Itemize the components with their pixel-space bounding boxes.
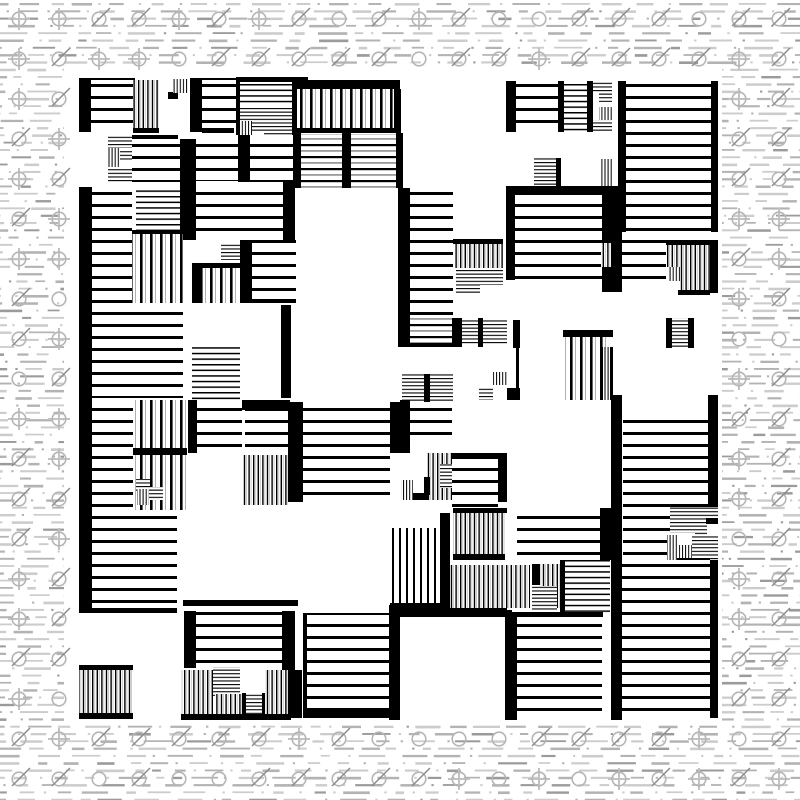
art-block-solid-bar: [478, 318, 483, 347]
art-block-hatched-h-xs: [430, 374, 453, 402]
art-block-hatched-h-lg: [517, 508, 600, 558]
art-block-solid-bar: [132, 135, 178, 139]
art-block-solid-bar: [133, 128, 159, 133]
art-block-solid-bar: [288, 670, 302, 718]
art-block-hatched-h-lg: [516, 81, 558, 132]
art-block-solid-bar: [711, 81, 718, 232]
art-block-solid-bar: [587, 81, 593, 132]
art-block-hatched-h-xs: [479, 387, 493, 400]
art-block-solid-bar: [293, 133, 301, 188]
art-block-solid-bar: [400, 400, 410, 443]
art-block-hatched-h-xs: [456, 268, 480, 293]
art-block-hatched-v-sm: [133, 80, 159, 128]
art-block-hatched-h-lg: [622, 560, 710, 718]
art-block-solid-bar: [79, 608, 177, 613]
art-block-solid-bar: [283, 181, 295, 240]
art-block-solid-bar: [398, 188, 410, 347]
art-block-solid-bar: [498, 453, 507, 502]
art-block-hatched-v-lg: [133, 400, 187, 448]
art-block-hatched-h-sm: [565, 560, 610, 613]
art-block-hatched-h-xs: [672, 318, 688, 348]
art-block-hatched-v-xs: [599, 107, 612, 120]
art-block-solid-bar: [453, 554, 505, 560]
art-block-hatched-h-sm: [240, 82, 293, 104]
art-block-solid-bar: [79, 665, 133, 670]
art-block-hatched-h-lg: [250, 135, 293, 182]
art-block-hatched-h-xs: [670, 507, 695, 533]
art-block-hatched-h-xs: [695, 520, 707, 535]
art-block-solid-bar: [506, 186, 603, 193]
art-block-solid-bar: [188, 400, 197, 453]
art-block-solid-bar: [678, 290, 710, 295]
art-block-hatched-v-xs: [401, 480, 413, 500]
art-block-solid-bar: [556, 158, 561, 187]
art-block-hatched-v-lg: [202, 268, 243, 303]
art-block-solid-bar: [610, 347, 613, 400]
art-block-solid-bar: [611, 395, 622, 720]
art-block-hatched-v-xs: [668, 267, 680, 281]
art-block-solid-bar: [600, 347, 603, 400]
art-block-solid-bar: [293, 80, 400, 89]
art-block-hatched-h-lg: [197, 400, 242, 453]
art-block-hatched-h-lg: [196, 612, 282, 667]
art-block-solid-bar: [192, 263, 243, 268]
art-block-solid-bar: [558, 81, 564, 132]
art-block-hatched-h-lg: [307, 613, 389, 710]
art-block-hatched-v-xs: [679, 545, 692, 560]
art-block-solid-bar: [710, 560, 718, 718]
art-block-hatched-h-xs: [264, 106, 293, 137]
art-block-solid-bar: [453, 508, 507, 513]
art-block-solid-bar: [184, 611, 196, 668]
art-block-hatched-h-xs: [108, 167, 132, 183]
art-block-hatched-v-sm: [265, 670, 290, 716]
art-block-solid-bar: [560, 560, 565, 615]
art-block-solid-bar: [242, 299, 296, 303]
art-block-solid-bar: [389, 605, 400, 720]
art-block-solid-bar: [506, 193, 515, 280]
art-block-hatched-h-lg: [92, 303, 183, 398]
art-block-hatched-h-lg: [410, 402, 452, 443]
art-block-solid-bar: [424, 477, 430, 495]
art-block-hatched-v-sm: [601, 243, 611, 267]
art-block-solid-bar: [183, 600, 298, 606]
art-block-hatched-h-xs: [213, 667, 240, 696]
art-block-hatched-h-xs: [599, 92, 612, 102]
art-block-solid-bar: [303, 710, 389, 718]
art-block-hatched-v-sm: [450, 565, 530, 608]
art-block-hatched-h-lg: [92, 187, 132, 303]
art-block-hatched-h-lg: [245, 410, 288, 453]
art-block-solid-bar: [666, 318, 672, 348]
art-block-hatched-v-xs: [601, 159, 612, 186]
art-block-hatched-h-sm: [564, 81, 587, 132]
art-block-hatched-h-xs: [149, 487, 163, 500]
art-block-hatched-h-xs: [120, 149, 133, 160]
art-block-solid-bar: [282, 611, 295, 670]
art-block-hatched-h-lg: [622, 232, 666, 283]
art-block-hatched-h-xs: [534, 158, 558, 187]
art-block-solid-bar: [281, 305, 291, 398]
art-block-solid-bar: [394, 89, 401, 132]
art-block-solid-bar: [666, 240, 716, 245]
art-block-solid-bar: [238, 135, 250, 182]
art-block-hatched-v-lg: [132, 234, 183, 303]
art-block-hatched-v-xs: [137, 489, 149, 505]
art-block-hatched-h-lg: [303, 402, 390, 500]
art-block-solid-bar: [192, 268, 202, 303]
art-block-solid-bar: [168, 92, 178, 99]
art-block-hatched-h-xs: [221, 243, 242, 260]
art-block-hatched-h-lg: [623, 412, 708, 507]
art-block-solid-bar: [236, 77, 240, 137]
art-block-hatched-h-xs: [483, 320, 507, 345]
art-block-solid-bar: [452, 318, 462, 347]
art-block-hatched-h-xs: [593, 120, 612, 132]
art-block-hatched-h-xs: [252, 121, 264, 131]
art-block-hatched-h-md: [351, 134, 396, 188]
art-block-hatched-v-sm: [453, 513, 505, 554]
art-block-solid-bar: [242, 400, 290, 410]
art-block-hatched-h-lg: [452, 458, 498, 508]
art-block-hatched-h-xs: [480, 268, 503, 285]
art-block-solid-bar: [710, 240, 718, 293]
generative-print: [0, 0, 800, 800]
art-block-solid-bar: [532, 564, 540, 585]
art-block-hatched-h-sm: [192, 345, 240, 400]
art-block-hatched-h-md: [301, 134, 342, 188]
art-block-hatched-h-lg: [196, 135, 238, 181]
art-block-solid-bar: [181, 714, 291, 720]
art-block-solid-bar: [602, 186, 622, 292]
art-block-hatched-v-sm: [181, 670, 213, 716]
art-block-solid-bar: [180, 139, 196, 240]
art-block-solid-bar: [240, 240, 252, 303]
art-block-hatched-h-md: [410, 318, 452, 343]
art-block-hatched-h-xs: [402, 374, 424, 402]
art-block-solid-bar: [410, 343, 452, 347]
art-block-solid-bar: [79, 80, 91, 132]
art-block-hatched-h-lg: [92, 510, 177, 610]
art-block-hatched-h-xs: [692, 535, 718, 560]
art-block-hatched-v-lg: [297, 89, 394, 128]
art-block-solid-bar: [507, 388, 520, 400]
art-block-hatched-h-lg: [515, 193, 602, 280]
art-block-solid-bar: [342, 133, 351, 188]
art-block-hatched-h-lg: [196, 183, 283, 240]
art-block-hatched-h-lg: [410, 188, 453, 318]
art-block-solid-bar: [706, 518, 718, 524]
art-block-solid-bar: [79, 400, 92, 613]
art-block-hatched-v-xs: [173, 79, 188, 93]
art-block-solid-bar: [303, 613, 307, 711]
art-block-solid-bar: [513, 320, 520, 348]
art-block-hatched-h-sm: [136, 189, 180, 230]
art-block-solid-bar: [190, 80, 202, 132]
art-block-hatched-h-lg: [92, 400, 133, 510]
art-block-hatched-h-lg: [252, 240, 296, 303]
art-block-hatched-v-sm: [79, 670, 133, 713]
art-block-hatched-h-xs: [108, 135, 132, 148]
art-block-solid-bar: [505, 612, 517, 720]
art-block-hatched-h-lg: [132, 139, 180, 182]
art-block-solid-bar: [517, 612, 603, 617]
art-block-hatched-v-sm: [243, 455, 288, 505]
artwork-page: [0, 0, 800, 800]
art-block-solid-bar: [453, 239, 503, 244]
art-block-solid-bar: [288, 402, 303, 502]
art-block-solid-bar: [440, 513, 450, 610]
art-block-solid-bar: [506, 81, 516, 132]
art-block-hatched-h-xs: [593, 81, 612, 92]
art-block-solid-bar: [688, 318, 694, 348]
art-block-hatched-h-xs: [462, 320, 478, 345]
art-block-hatched-h-lg: [626, 81, 711, 232]
art-block-hatched-h-xs: [440, 464, 453, 488]
art-block-hatched-v-xs: [240, 121, 252, 137]
art-block-solid-bar: [708, 395, 718, 507]
art-block-hatched-v-sm: [455, 244, 503, 268]
art-block-solid-bar: [79, 187, 92, 400]
art-block-hatched-h-lg: [623, 507, 670, 560]
art-block-hatched-h-xs: [537, 586, 557, 613]
art-block-hatched-v-sm: [666, 245, 710, 267]
art-block-solid-bar: [563, 330, 613, 337]
art-block-solid-bar: [132, 230, 183, 234]
art-block-hatched-h-lg: [91, 80, 133, 132]
art-block-hatched-v-xs: [493, 372, 507, 385]
art-block-hatched-v-sm: [680, 266, 710, 291]
art-block-hatched-v-xs: [107, 148, 120, 167]
art-block-solid-bar: [79, 713, 133, 719]
art-block-solid-bar: [424, 374, 430, 402]
art-block-hatched-v-md: [392, 528, 440, 605]
art-block-solid-bar: [293, 128, 401, 133]
art-block-solid-bar: [202, 128, 234, 133]
art-block-hatched-h-lg: [517, 617, 602, 718]
art-block-hatched-v-xs: [603, 347, 610, 400]
art-block-hatched-v-xs: [667, 535, 677, 560]
art-block-solid-bar: [396, 133, 403, 188]
art-block-solid-bar: [133, 448, 187, 455]
art-block-solid-bar: [400, 608, 507, 617]
art-block-hatched-h-xs: [240, 106, 264, 121]
